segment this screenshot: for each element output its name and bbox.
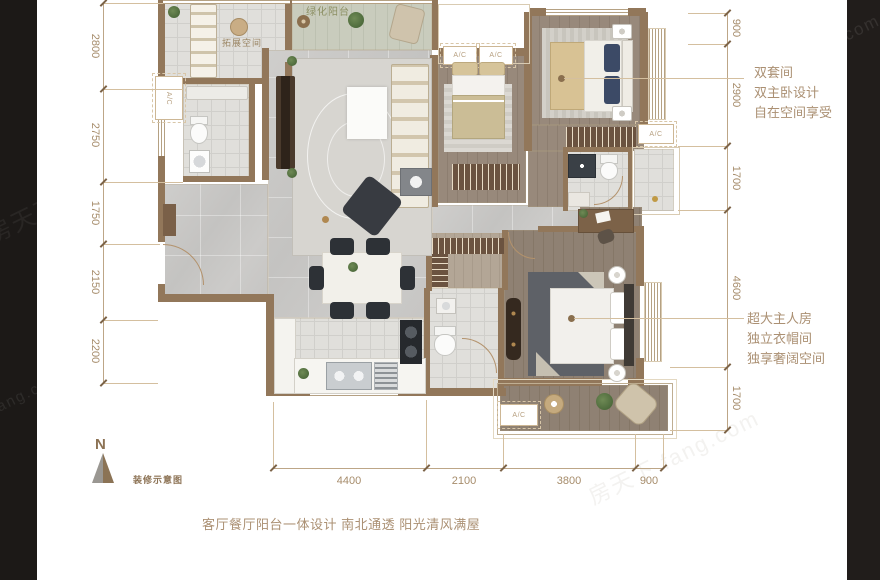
dim-label-left-5: 2200: [88, 331, 102, 371]
dim-conn: [503, 434, 504, 468]
watermark-band-right: com: [841, 11, 880, 46]
dim-label-bottom-2: 2100: [434, 474, 494, 488]
compass-letter: N: [95, 436, 106, 453]
wall-bath-bottom: [430, 388, 506, 396]
annotation-suite-line1: 双套间: [754, 63, 832, 83]
dim-chain-bottom: [273, 468, 663, 469]
black-band-right: com: [847, 0, 880, 580]
dim-label-left-3: 1750: [88, 193, 102, 233]
dim-label-right-1: 900: [729, 8, 743, 48]
suite-nightstand-1: [612, 24, 632, 39]
dim-conn: [670, 367, 727, 368]
dim-conn: [635, 434, 636, 468]
dim-label-right-5: 1700: [729, 378, 743, 418]
annotation-master: 超大主人房 独立衣帽间 独享奢阔空间: [747, 309, 825, 369]
bath-sink: [436, 298, 456, 314]
suite-headboard: [622, 40, 633, 112]
master-nightstand-1: [608, 266, 626, 284]
window-suite-top: [546, 8, 628, 16]
ac-box-right: A/C: [638, 124, 674, 144]
plant-living-1: [287, 56, 297, 66]
annotation-suite: 双套间 双主卧设计 自在空间享受: [754, 63, 832, 123]
bay-window-suite: [648, 28, 666, 120]
dim-conn: [688, 44, 727, 45]
plant-kitchen: [298, 368, 309, 379]
dining-chair-6: [400, 266, 415, 290]
wall-laundry-right: [249, 84, 255, 182]
ac-box-bottom: A/C: [500, 404, 538, 426]
ac-box-left: A/C: [155, 76, 183, 120]
wall-suite-right: [640, 12, 648, 124]
dim-conn: [670, 430, 727, 431]
dim-conn: [103, 182, 183, 183]
dining-chair-5: [309, 266, 324, 290]
annotation-master-line3: 独享奢阔空间: [747, 349, 825, 369]
closet-rack-vertical: [432, 254, 448, 288]
compass-caption: 装修示意图: [133, 473, 183, 486]
tv-cabinet: [276, 76, 295, 169]
dim-label-left-4: 2150: [88, 262, 102, 302]
annotation-master-line1: 超大主人房: [747, 309, 825, 329]
suite-vanity: [568, 192, 590, 207]
stove: [400, 320, 422, 364]
suite-shower: [568, 154, 596, 178]
plant-dining: [348, 262, 358, 272]
floor-hallway: [528, 151, 566, 207]
kitchen-counter-left: [274, 318, 296, 394]
black-band-left: 房天下 fang.com: [0, 0, 37, 580]
plant-green-balcony: [348, 12, 364, 28]
frame-utility-balcony: [632, 147, 680, 215]
side-table: [400, 168, 432, 196]
dim-conn: [103, 244, 160, 245]
balcony-sofa: [190, 4, 217, 78]
annotation-suite-line3: 自在空间享受: [754, 103, 832, 123]
dim-label-bottom-1: 4400: [319, 474, 379, 488]
bedroom2-pillow-2: [479, 62, 505, 76]
dining-chair-2: [366, 238, 390, 255]
dim-conn: [678, 146, 727, 147]
dim-conn: [103, 89, 183, 90]
balcony-pouf: [544, 394, 564, 414]
dish-rack: [374, 362, 398, 390]
dim-conn: [273, 402, 274, 468]
toilet-laundry: [190, 123, 208, 144]
bedroom2-wardrobe: [452, 164, 520, 190]
compass-arrow-left-half: [92, 453, 103, 483]
wall-living-left: [262, 48, 269, 180]
plant-balcony-tl: [168, 6, 180, 18]
dim-conn: [678, 210, 727, 211]
wall-kitchen-left: [266, 294, 274, 394]
bedroom2-mattress: [452, 75, 505, 97]
compass-arrow-right-half: [103, 453, 114, 483]
plant-desk: [579, 209, 588, 218]
leader-line-suite: [564, 78, 744, 79]
wall-suite-top-left: [530, 8, 546, 16]
compass-arrow-icon: [92, 453, 114, 483]
dim-conn: [103, 3, 163, 4]
dining-chair-4: [366, 302, 390, 319]
bedroom2-blanket: [452, 95, 505, 139]
dim-conn: [663, 434, 664, 468]
dim-conn: [103, 320, 158, 321]
tagline: 客厅餐厅阳台一体设计 南北通透 阳光清风满屋: [202, 515, 480, 535]
dim-label-bottom-3: 3800: [539, 474, 599, 488]
floorplan-screenshot: 房天下 fang.com 房天下 fang.com: [0, 0, 880, 580]
leader-line-master: [574, 318, 744, 319]
dining-chair-3: [330, 302, 354, 319]
wall-foyer-bottom: [158, 294, 274, 302]
master-bed: [550, 288, 614, 364]
wall-master-right-upper: [636, 230, 644, 286]
floor-lamp: [322, 216, 329, 223]
dim-conn: [426, 400, 427, 468]
toilet-main: [434, 334, 456, 356]
suite-wardrobe: [566, 127, 636, 147]
suite-nightstand-2: [612, 106, 632, 121]
watermark-band-left-cn: 房天下: [0, 185, 66, 251]
suite-pillow-2: [604, 76, 620, 104]
master-nightstand-2: [608, 364, 626, 382]
balcony-side-table: [230, 18, 248, 36]
laundry-counter: [186, 86, 248, 100]
bedroom2-pillow-1: [452, 62, 478, 76]
annotation-suite-line2: 双主卧设计: [754, 83, 832, 103]
dim-label-left-2: 2750: [88, 115, 102, 155]
washing-machine: [189, 150, 210, 173]
dining-table: [322, 252, 402, 304]
bay-window-master: [644, 282, 662, 362]
closet-rack-horizontal: [432, 238, 504, 254]
dim-label-right-2: 2900: [729, 75, 743, 115]
utility-faucet: [652, 196, 658, 202]
dim-chain-left: [103, 3, 104, 383]
dim-label-left-1: 2800: [88, 26, 102, 66]
ac-box-left-label: A/C: [165, 91, 172, 104]
kitchen-sink: [326, 362, 372, 390]
planter: [297, 15, 310, 28]
wall-balcony-tl-right-upper: [285, 0, 292, 50]
expand-space-label: 拓展空间: [222, 36, 262, 49]
dining-chair-1: [330, 238, 354, 255]
annotation-master-line2: 独立衣帽间: [747, 329, 825, 349]
suite-pillow-1: [604, 44, 620, 72]
toilet-suite: [600, 162, 618, 180]
plant-balcony-br: [596, 393, 613, 410]
plant-living-2: [287, 168, 297, 178]
living-table: [347, 87, 387, 139]
master-headboard: [624, 284, 634, 366]
wall-laundry-bottom: [183, 176, 253, 182]
dim-conn: [688, 13, 727, 14]
dim-conn: [103, 383, 158, 384]
dim-label-right-4: 4600: [729, 268, 743, 308]
green-balcony-label: 绿化阳台: [306, 3, 350, 18]
wall-bath-master-divider: [498, 288, 504, 390]
foyer-cabinet: [163, 204, 176, 236]
dim-label-bottom-4: 900: [619, 474, 679, 488]
window-balcony-tl-rail: [163, 0, 290, 4]
wall-suitebath-top: [563, 147, 633, 152]
master-dresser: [506, 298, 521, 360]
watermark-band-left-en: fang.com: [0, 369, 65, 418]
dim-label-right-3: 1700: [729, 158, 743, 198]
suite-blanket: [550, 42, 586, 110]
